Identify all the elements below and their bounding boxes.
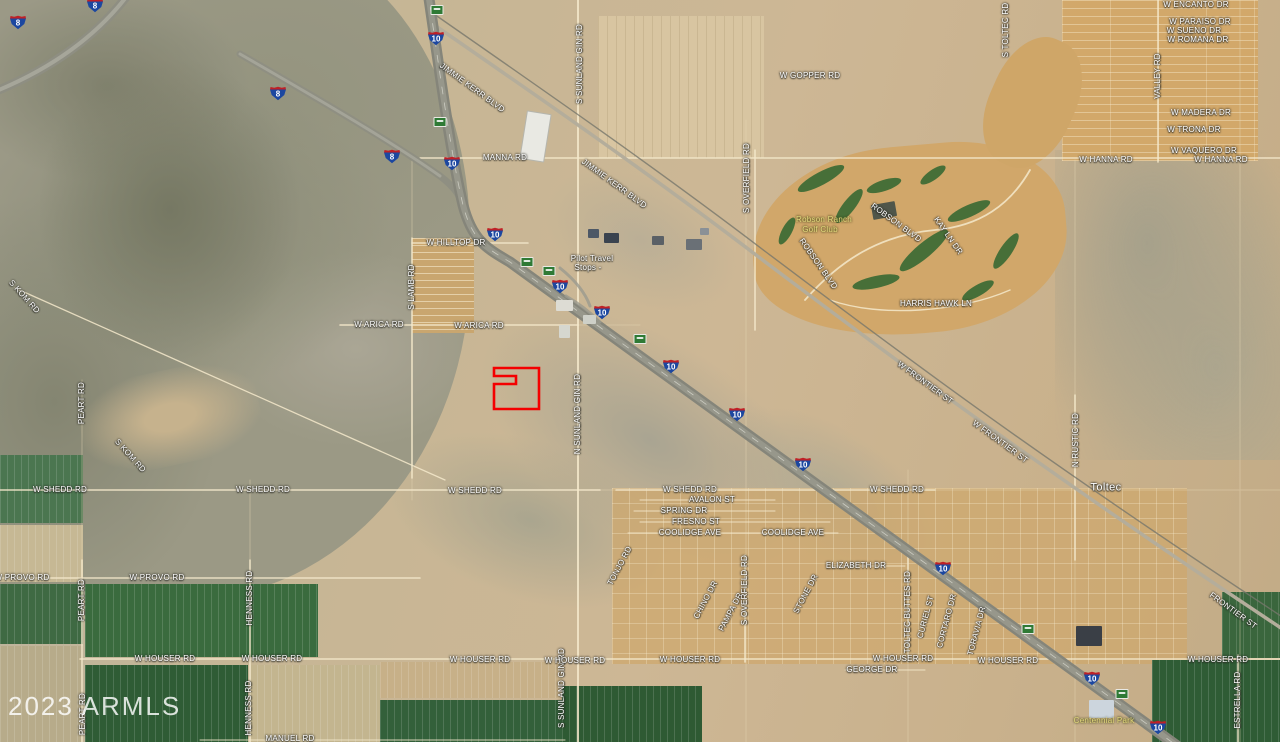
mile-marker-sign xyxy=(431,5,444,15)
road-label: AVALON ST xyxy=(689,496,735,504)
road-label: S LAMB RD xyxy=(408,264,416,309)
mile-marker-sign xyxy=(521,257,534,267)
interstate-10-shield: 10 xyxy=(1150,720,1167,735)
road-label: W HOUSER RD xyxy=(1188,656,1249,664)
place-label: Toltec xyxy=(1090,483,1121,494)
road-label: CHINO DR xyxy=(693,580,720,620)
interstate-10-shield: 10 xyxy=(729,407,746,422)
watermark: 2023 ARMLS xyxy=(8,691,181,722)
road-label: W VAQUERO DR xyxy=(1171,147,1237,155)
road-label: COOLIDGE AVE xyxy=(762,529,824,537)
park-label: Centennial Park xyxy=(1074,717,1135,725)
park-label: Golf Club xyxy=(802,226,838,234)
shield-number: 8 xyxy=(10,19,27,29)
interstate-10-shield: 10 xyxy=(428,31,445,46)
mile-marker-sign xyxy=(434,117,447,127)
road-label: GEORGE DR xyxy=(846,666,897,674)
road-label: W TRONA DR xyxy=(1167,126,1220,134)
shield-number: 10 xyxy=(487,231,504,241)
road-label: N SUNLAND GIN RD xyxy=(574,374,582,454)
interstate-8-shield: 8 xyxy=(384,149,401,164)
shield-number: 10 xyxy=(552,283,569,293)
road-label: W HOUSER RD xyxy=(135,655,196,663)
road-label: W FRONTIER ST xyxy=(896,360,954,405)
road-label: W MADERA DR xyxy=(1171,109,1231,117)
road-label: W HOUSER RD xyxy=(978,657,1039,665)
road-label: W HOUSER RD xyxy=(242,655,303,663)
road-label: W PROVO RD xyxy=(0,574,49,582)
interstate-10-shield: 10 xyxy=(594,305,611,320)
shield-number: 10 xyxy=(428,35,445,45)
interstate-10-shield: 10 xyxy=(552,279,569,294)
road-label: KAY LN DR xyxy=(932,216,964,256)
road-label: W ENCANTO DR xyxy=(1163,1,1229,9)
road-label: TOLTEC BUTTES RD xyxy=(904,571,912,653)
mile-marker-sign xyxy=(1116,689,1129,699)
road-label: JIMMIE KERR BLVD xyxy=(438,62,506,114)
road-label: STONE DR xyxy=(792,573,819,615)
road-label: PEART RD xyxy=(78,382,86,424)
road-label: W SHEDD RD xyxy=(870,486,924,494)
road-label: W PARAISO DR xyxy=(1169,18,1231,26)
mile-marker-sign xyxy=(543,266,556,276)
road-label: SPRING DR xyxy=(661,507,708,515)
shield-number: 10 xyxy=(729,411,746,421)
shield-number: 10 xyxy=(1150,724,1167,734)
road-label: W HOUSER RD xyxy=(873,655,934,663)
interstate-10-shield: 10 xyxy=(1084,671,1101,686)
poi-label: Pilot Travel xyxy=(571,255,614,263)
road-label: S KOM RD xyxy=(113,438,147,474)
road-label: W HILLTOP DR xyxy=(426,239,485,247)
road-label: W FRONTIER ST xyxy=(971,419,1029,464)
road-label: W SHEDD RD xyxy=(663,486,717,494)
road-label: W HANNA RD xyxy=(1079,156,1133,164)
poi-label: Stops - xyxy=(574,264,601,272)
road-label: W HANNA RD xyxy=(1194,156,1248,164)
interstate-10-shield: 10 xyxy=(487,227,504,242)
road-label: HARRIS HAWK LN xyxy=(900,300,972,308)
road-label: W SHEDD RD xyxy=(448,487,502,495)
road-label: W SHEDD RD xyxy=(236,486,290,494)
road-label: ROBSON BLVD xyxy=(798,237,839,291)
road-label: MANUEL RD xyxy=(265,735,314,742)
road-label: ELIZABETH DR xyxy=(826,562,886,570)
road-label: S SUNLAND GIN RD xyxy=(576,24,584,104)
road-label: HENNESS RD xyxy=(245,681,253,736)
road-label: S OVERFIELD RD xyxy=(741,555,749,625)
road-label: ESTRELLA RD xyxy=(1234,672,1242,729)
road-label: W HOUSER RD xyxy=(545,657,606,665)
road-label: FRESNO ST xyxy=(672,518,720,526)
road-label: W HOUSER RD xyxy=(660,656,721,664)
shield-number: 10 xyxy=(444,160,461,170)
road-label: W GOPPER RD xyxy=(780,72,841,80)
road-label: W HOUSER RD xyxy=(450,656,511,664)
road-label: W PROVO RD xyxy=(130,574,185,582)
shield-number: 8 xyxy=(270,90,287,100)
road-label: PEART RD xyxy=(78,579,86,621)
interstate-10-shield: 10 xyxy=(663,359,680,374)
road-label: W ROMANA DR xyxy=(1168,36,1229,44)
shield-number: 10 xyxy=(594,309,611,319)
road-label: FRONTIER ST xyxy=(1208,591,1258,630)
mile-marker-sign xyxy=(1022,624,1035,634)
shield-number: 10 xyxy=(663,363,680,373)
shield-number: 10 xyxy=(795,461,812,471)
satellite-map[interactable]: JIMMIE KERR BLVDJIMMIE KERR BLVDMANNA RD… xyxy=(0,0,1280,742)
park-label: Robson Ranch xyxy=(796,216,852,224)
road-label: JIMMIE KERR BLVD xyxy=(580,158,648,210)
road-label: TONJO RD xyxy=(606,545,633,587)
interstate-10-shield: 10 xyxy=(935,561,952,576)
road-label: CORTARO DR xyxy=(936,593,958,649)
road-label: CURIEL ST xyxy=(916,595,935,639)
shield-number: 8 xyxy=(384,153,401,163)
mile-marker-sign xyxy=(634,334,647,344)
interstate-8-shield: 8 xyxy=(10,15,27,30)
road-label: COOLIDGE AVE xyxy=(659,529,721,537)
road-label: MANNA RD xyxy=(483,154,527,162)
road-label: S OVERFIELD RD xyxy=(743,143,751,213)
road-label: W SUENO DR xyxy=(1167,27,1222,35)
road-label: S TOLTEC RD xyxy=(1002,3,1010,58)
road-label: VALLEY RD xyxy=(1154,53,1162,99)
road-label: ROBSON BLVD xyxy=(869,202,922,244)
interstate-8-shield: 8 xyxy=(270,86,287,101)
road-label: W ARICA RD xyxy=(354,321,404,329)
road-label: W SHEDD RD xyxy=(33,486,87,494)
shield-number: 8 xyxy=(87,2,104,12)
shield-number: 10 xyxy=(1084,675,1101,685)
road-label: TORAVIA DR xyxy=(967,606,988,657)
road-label: S KOM RD xyxy=(7,279,41,315)
interstate-10-shield: 10 xyxy=(444,156,461,171)
interstate-10-shield: 10 xyxy=(795,457,812,472)
interstate-8-shield: 8 xyxy=(87,0,104,13)
road-label: N RUSTIC RD xyxy=(1072,413,1080,467)
road-label: HENNESS RD xyxy=(246,571,254,626)
label-layer: JIMMIE KERR BLVDJIMMIE KERR BLVDMANNA RD… xyxy=(0,0,1280,742)
shield-number: 10 xyxy=(935,565,952,575)
road-label: W ARICA RD xyxy=(454,322,504,330)
